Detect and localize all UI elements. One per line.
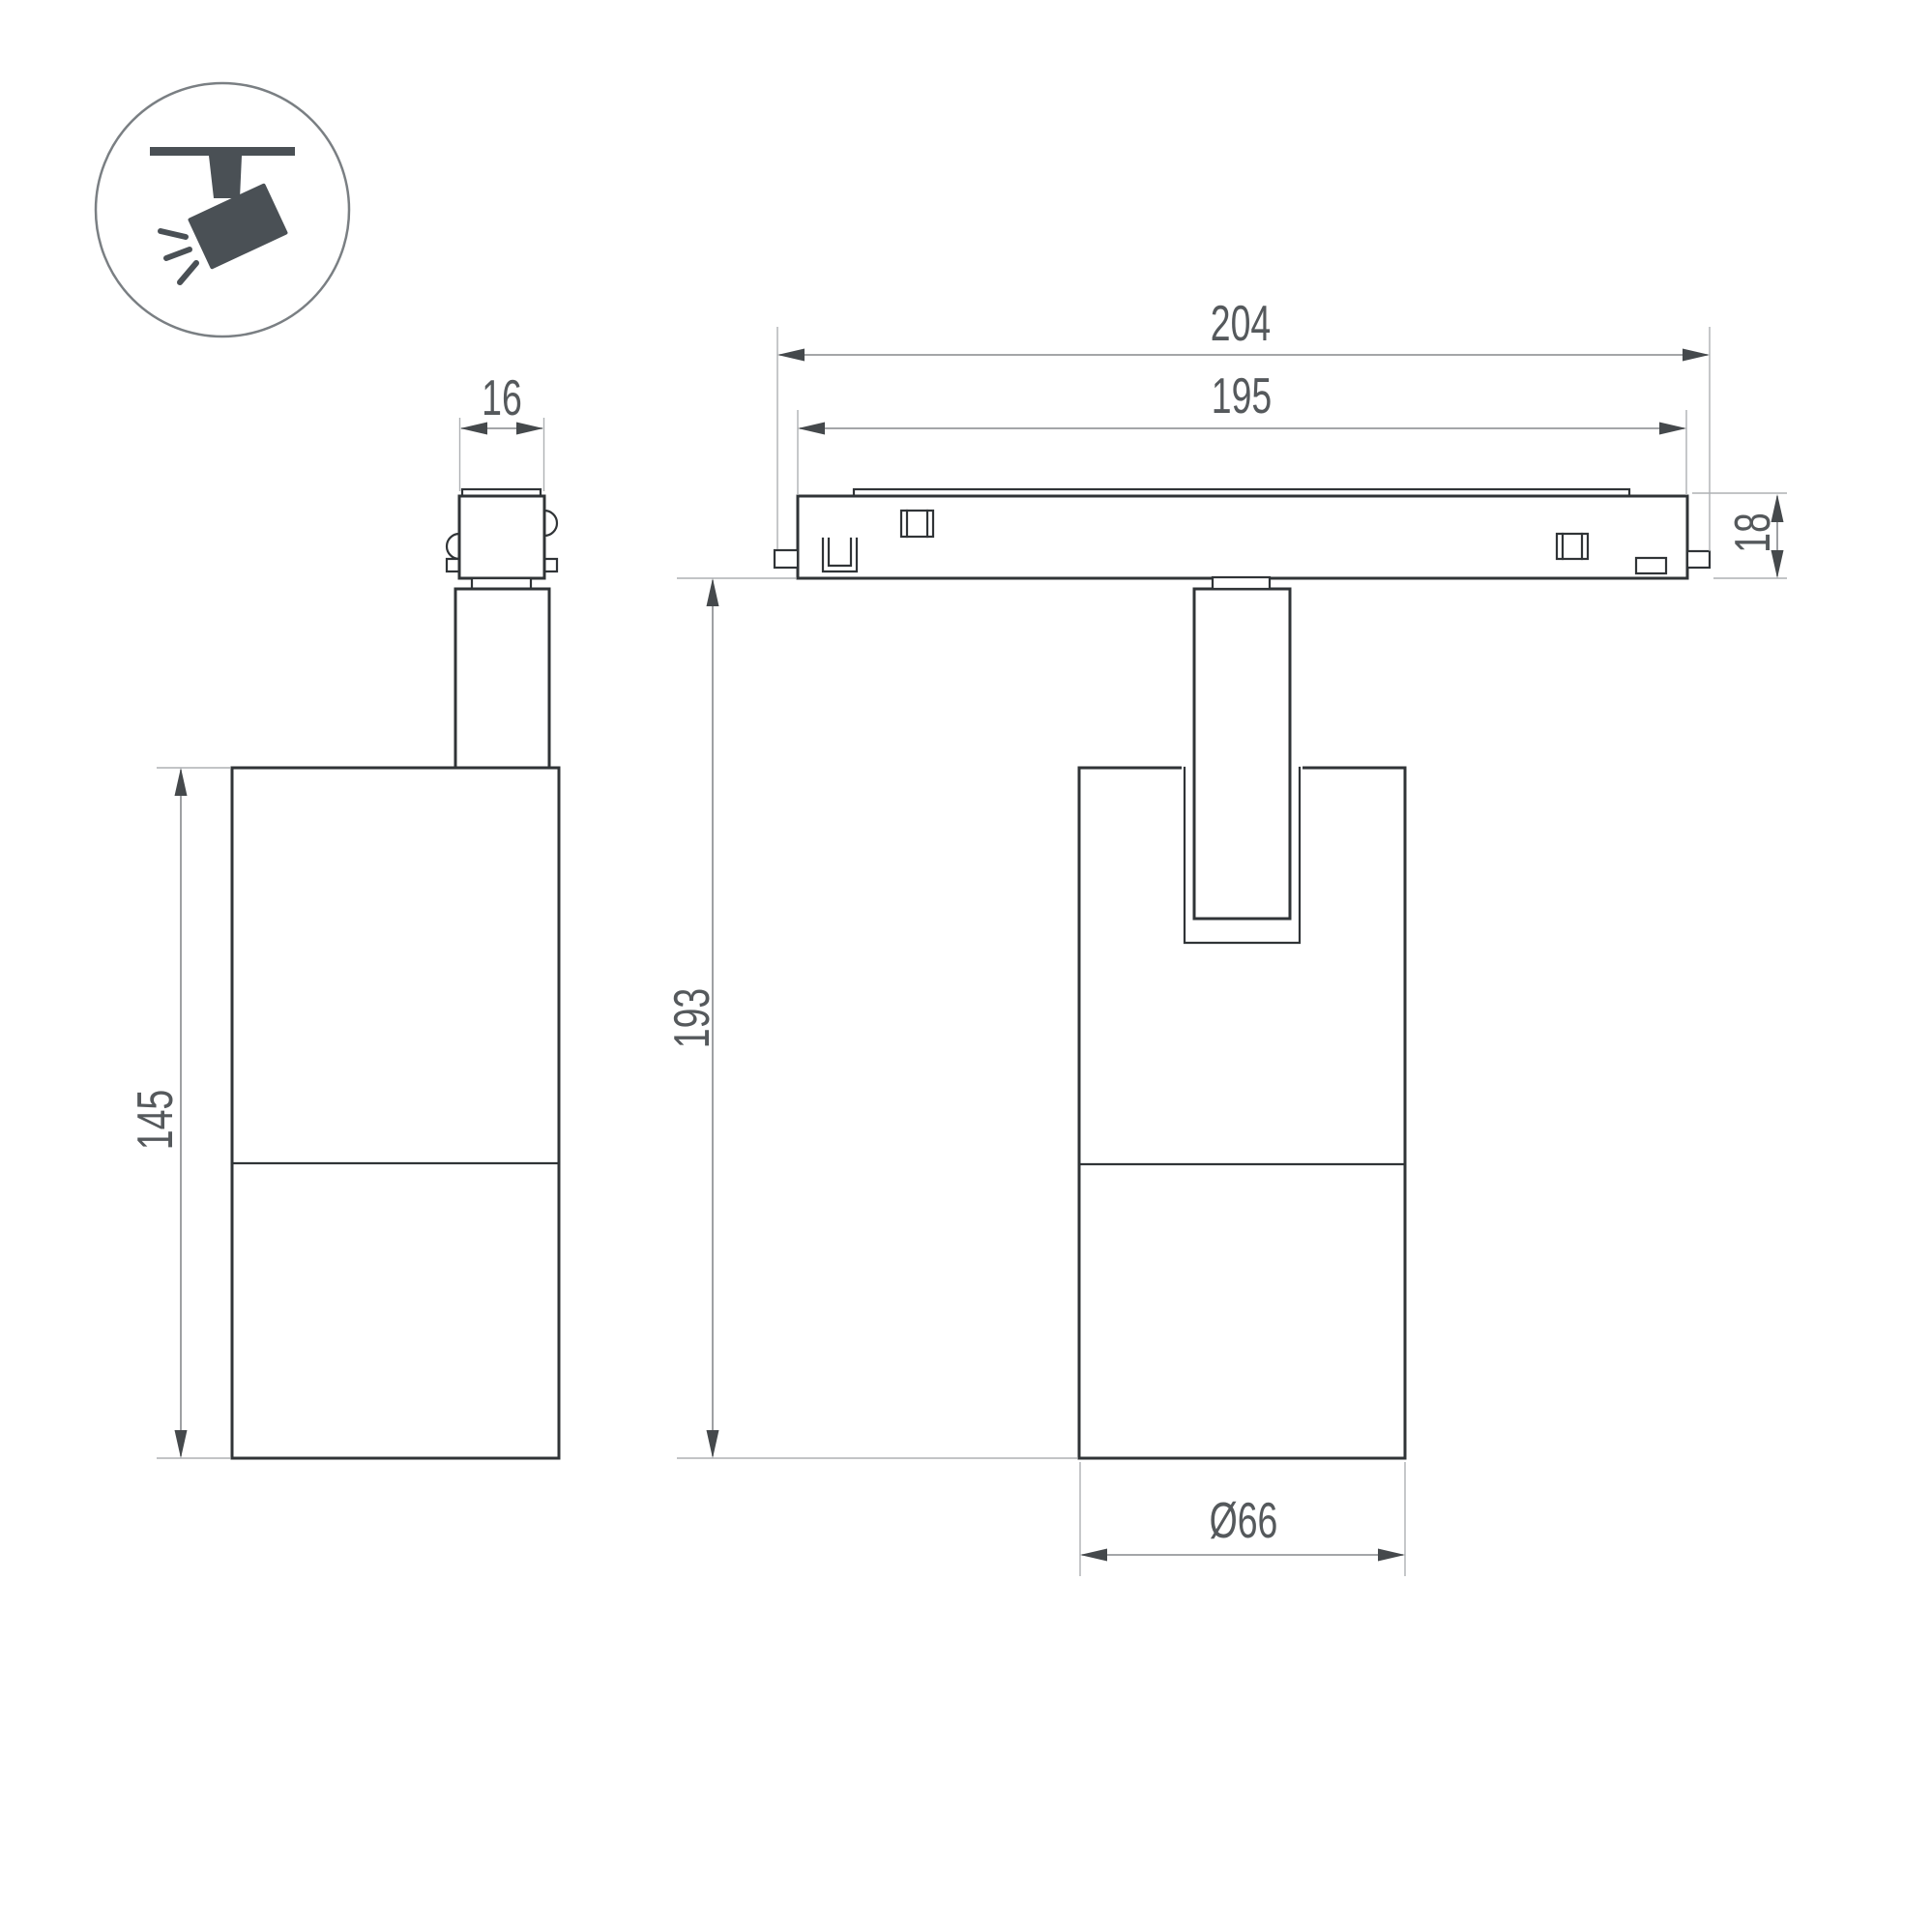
arrowhead [798,423,825,435]
dimension-track-rail-length: 195 [798,367,1686,495]
front-stem-neck [1213,577,1270,589]
dimension-label-16: 16 [482,369,522,426]
side-adapter-ear-right [544,511,557,536]
dimension-body-diameter: Ø66 [1080,1462,1405,1576]
dimension-label-204: 204 [1211,295,1271,352]
arrowhead [1683,349,1710,362]
arrowhead [1080,1549,1107,1562]
track-end-tab-right [1687,551,1710,568]
icon-spot-head [188,183,288,270]
track-end-tab-left [775,550,798,568]
side-adapter-body [459,496,544,578]
side-adapter-ear-left [447,534,459,559]
track-slot-right [1636,558,1666,573]
icon-light-ray [161,231,186,237]
dimension-label-145: 145 [127,1090,184,1150]
side-adapter-tab-left [447,559,459,571]
side-stem-neck [472,578,531,589]
track-spotlight-icon [96,83,349,337]
arrowhead [175,1430,188,1458]
dimension-body-length: 145 [127,768,230,1458]
drawing-canvas: 16 145 [0,0,1932,1932]
side-stem [455,589,549,768]
arrowhead [1378,1549,1405,1562]
dimension-label-18: 18 [1724,512,1781,553]
dimension-adapter-width: 16 [460,369,544,491]
arrowhead [707,1430,719,1458]
front-view: 204 195 18 193 [663,295,1787,1576]
side-view: 16 145 [127,369,559,1458]
dimension-overall-height: 193 [663,578,1077,1458]
icon-light-ray [180,263,196,282]
side-lamp-body [232,768,559,1458]
dimension-label-195: 195 [1212,367,1272,424]
front-stem [1194,589,1290,919]
arrowhead [707,578,719,606]
arrowhead [175,768,188,796]
technical-drawing-page: 16 145 [0,0,1932,1932]
icon-stem [209,156,242,198]
dimension-label-193: 193 [663,988,720,1048]
dimension-label-d66: Ø66 [1210,1492,1278,1549]
icon-track-bar [150,147,295,156]
icon-light-ray [166,249,190,258]
arrowhead [777,349,805,362]
side-adapter-tab-right [544,559,557,571]
arrowhead [1771,550,1784,578]
track-connector-right [1557,534,1588,559]
arrowhead [1659,423,1686,435]
